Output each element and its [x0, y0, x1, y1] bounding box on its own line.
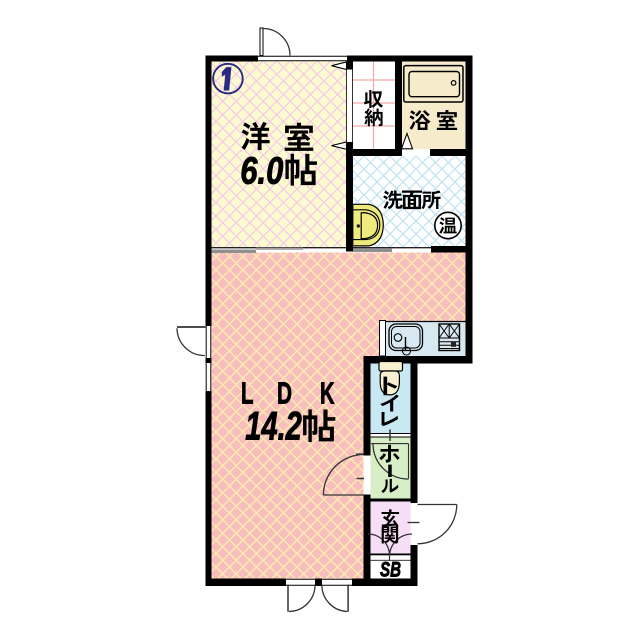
svg-text:K: K [320, 375, 335, 410]
svg-text:SB: SB [380, 558, 401, 582]
svg-text:6.0: 6.0 [240, 151, 283, 193]
svg-text:14.2: 14.2 [245, 405, 302, 449]
